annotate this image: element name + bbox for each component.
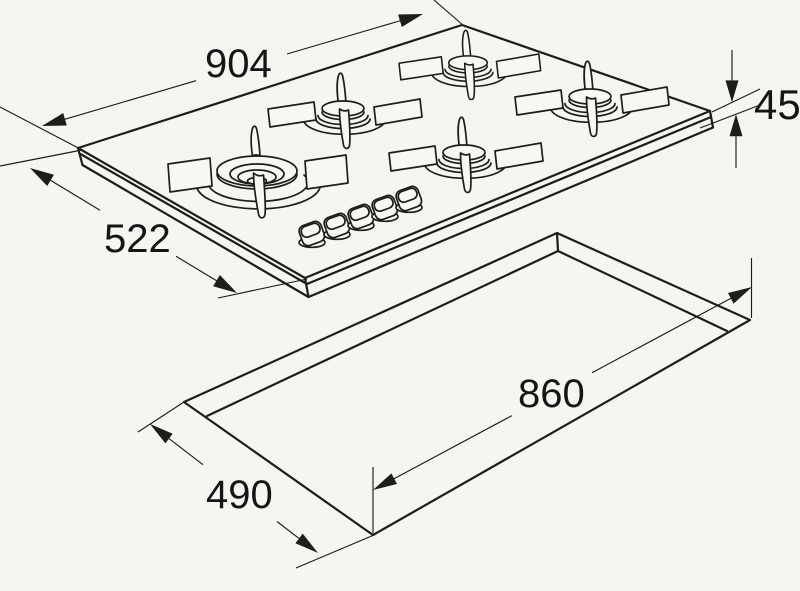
technical-drawing: 904 522 45 860 490 xyxy=(0,0,800,591)
dim-label-hob-width: 904 xyxy=(205,42,272,86)
arrowhead-up xyxy=(730,114,743,136)
arrowhead-bottom xyxy=(295,534,318,553)
dim-label-cutout-depth: 490 xyxy=(206,473,273,517)
dim-label-hob-depth: 522 xyxy=(104,217,171,261)
installation-diagram: 904 522 45 860 490 xyxy=(0,0,800,591)
arrowhead-top xyxy=(30,168,54,186)
cutout-corner-edge xyxy=(557,233,558,251)
arrowhead-bottom xyxy=(213,275,237,293)
arrowhead-right xyxy=(398,14,423,27)
dimension-hob-height: 45 xyxy=(700,50,800,168)
dimension-cutout-width: 860 xyxy=(373,258,752,533)
arrowhead-top xyxy=(150,424,173,443)
arrowhead-left xyxy=(42,113,67,126)
dim-label-hob-height: 45 xyxy=(754,81,800,128)
dimension-cutout-depth: 490 xyxy=(138,402,374,568)
arrowhead-right xyxy=(728,287,752,304)
arrowhead-down xyxy=(726,80,739,102)
arrowhead-left xyxy=(373,473,397,490)
dim-label-cutout-width: 860 xyxy=(518,372,585,416)
cutout-inner-wall xyxy=(207,251,727,416)
